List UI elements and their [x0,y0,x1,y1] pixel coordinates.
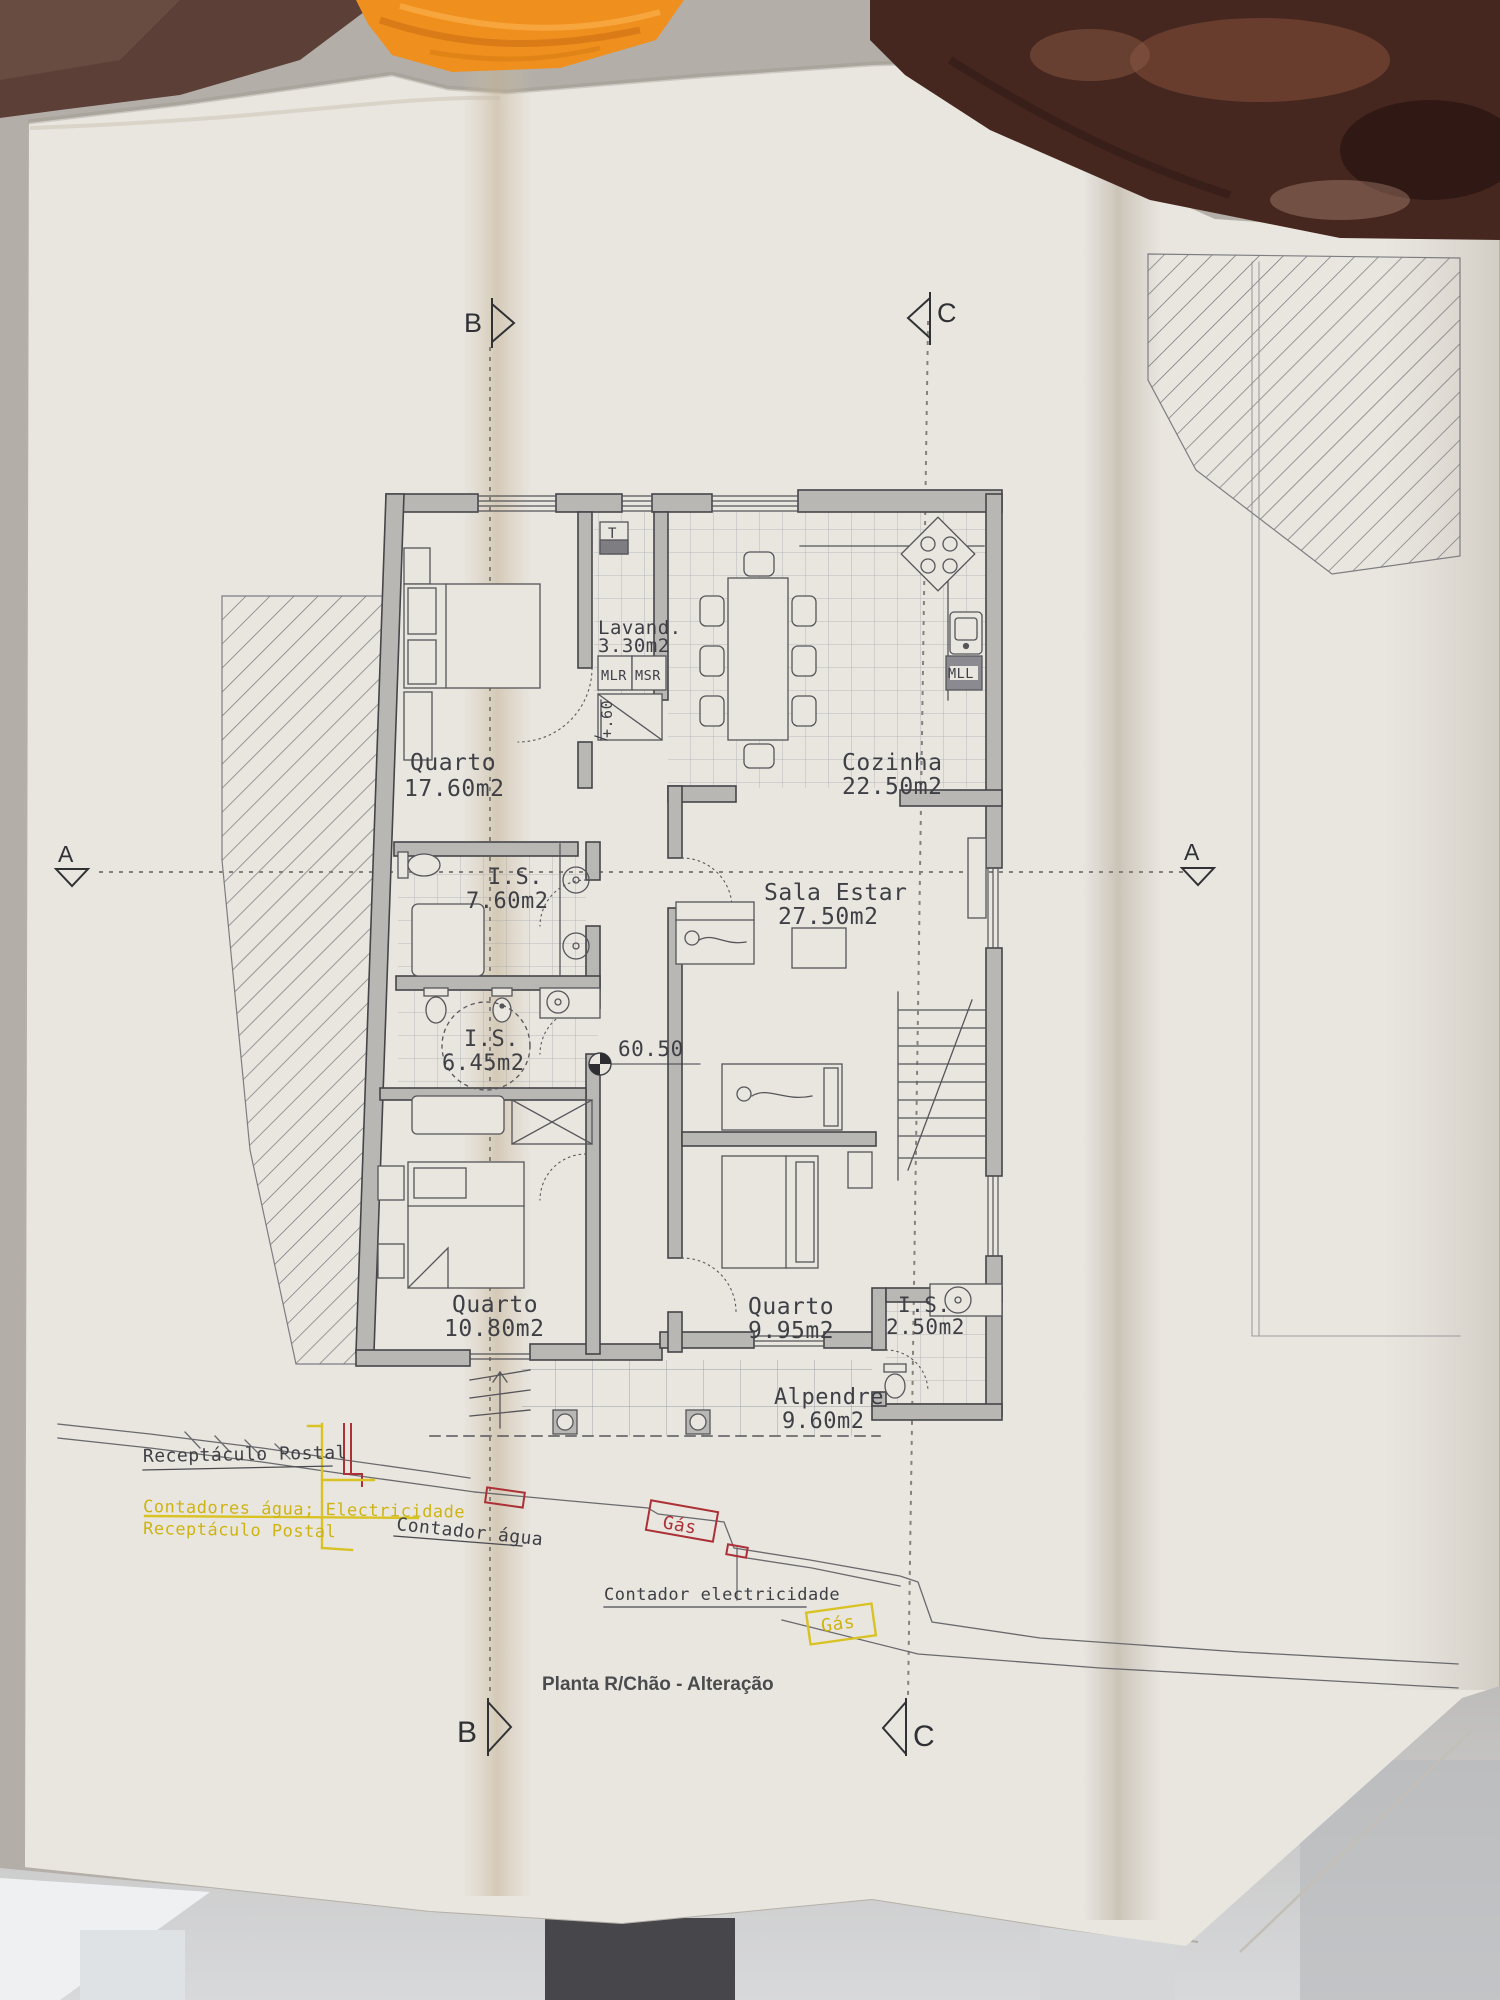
toilet-wc250 [884,1364,906,1398]
room-label-quarto-995-area: 9.95m2 [748,1318,834,1344]
daybed-sala [722,1064,842,1130]
electric-meter-label: Contador electricidade [604,1585,840,1605]
photo-of-floor-plan: B C B C A A Quarto 17.60m2 Lavand. [0,0,1500,2000]
room-label-quarto-1080-name: Quarto [452,1292,538,1318]
tv-cabinet [968,838,986,918]
water-heater-label: T [608,526,617,542]
room-label-alpendre-name: Alpendre [774,1385,884,1410]
room-label-quarto-1080-area: 10.80m2 [444,1316,544,1342]
kitchen-sink [950,612,982,654]
dryer-label: MSR [635,668,661,684]
room-label-cozinha-name: Cozinha [842,750,942,776]
toilet-is645 [424,988,448,1023]
postal-box-label: Receptáculo Postal [143,1442,347,1467]
room-label-is645-area: 6.45m2 [442,1051,524,1076]
sofa-sala [676,902,754,964]
sink-counter-is645 [540,988,600,1018]
room-label-quarto-995-name: Quarto [748,1294,834,1320]
chair-gap-shadow [545,1918,735,2000]
drawing-title: Planta R/Chão - Alteração [542,1674,774,1695]
section-label: C [913,1720,935,1753]
room-label-quarto-1760-name: Quarto [410,750,496,776]
room-label-lavand-area: 3.30m2 [598,635,670,657]
washer-label: MLR [601,668,627,684]
room-label-quarto-1760-area: 17.60m2 [404,776,504,802]
room-label-alpendre-area: 9.60m2 [782,1409,864,1434]
room-label-is760-area: 7.60m2 [466,889,548,914]
room-label-cozinha-area: 22.50m2 [842,774,942,800]
step-height-value: +.60 [598,700,616,738]
section-label: A [1184,839,1200,865]
toilet-is760 [398,852,440,878]
room-label-sala-area: 27.50m2 [778,904,878,930]
section-label: B [464,308,482,338]
room-label-is645-name: I.S. [464,1027,519,1052]
chair-leg-left [80,1930,185,2000]
section-label: C [937,298,957,328]
bench [412,1096,504,1134]
coffee-table [792,928,846,968]
room-label-is250-name: I.S. [898,1293,951,1317]
dishwasher-label: MLL [948,666,974,682]
section-label: A [58,841,74,867]
section-label: B [457,1716,477,1749]
room-label-sala-name: Sala Estar [764,880,907,906]
postal-note-label: Receptáculo Postal [143,1519,337,1542]
room-label-is250-area: 2.50m2 [886,1315,965,1339]
room-label-is760-name: I.S. [488,865,543,890]
floor-level-value: 60.50 [618,1037,684,1061]
shower-is760 [412,904,484,976]
